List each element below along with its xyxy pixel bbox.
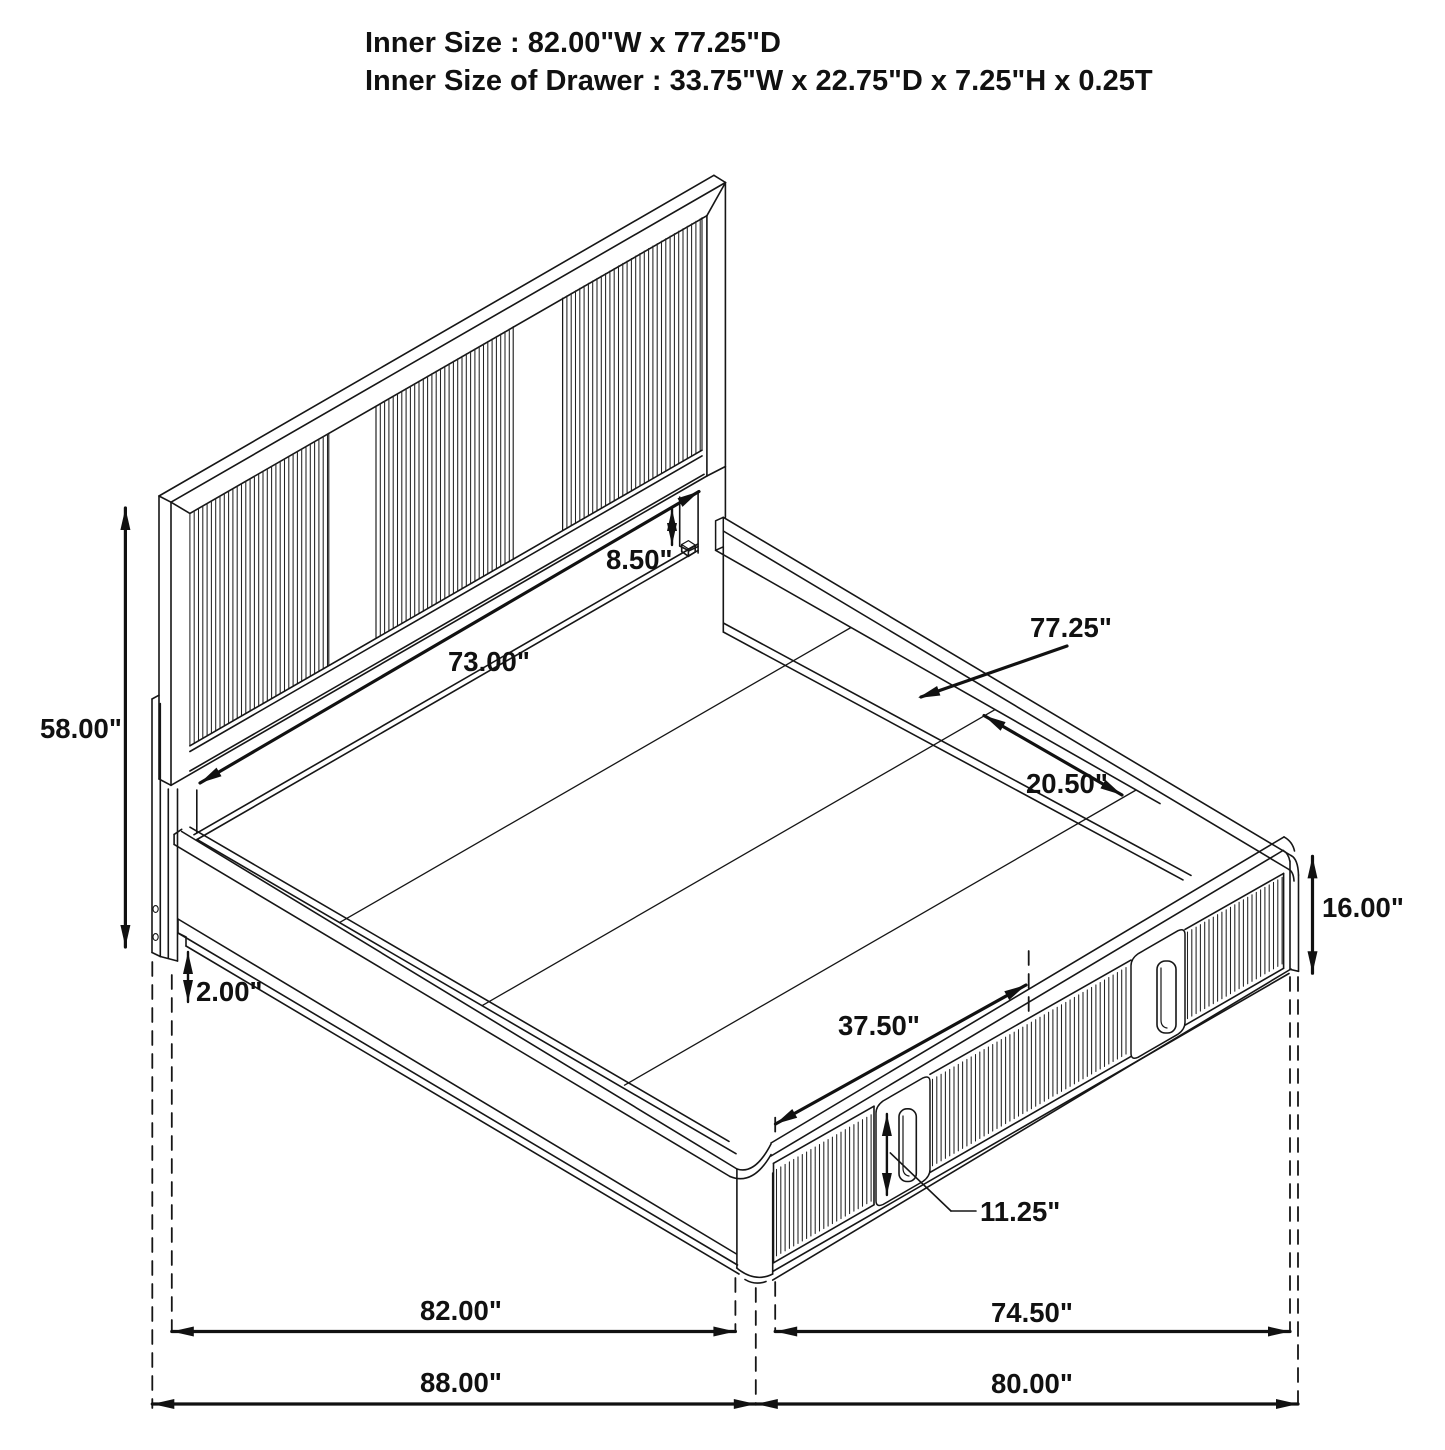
svg-text:77.25": 77.25" <box>1030 612 1112 643</box>
svg-text:82.00": 82.00" <box>420 1295 502 1326</box>
svg-text:37.50": 37.50" <box>838 1010 920 1041</box>
svg-text:2.00": 2.00" <box>196 976 263 1007</box>
svg-text:80.00": 80.00" <box>991 1368 1073 1399</box>
svg-text:74.50": 74.50" <box>991 1297 1073 1328</box>
svg-text:88.00": 88.00" <box>420 1367 502 1398</box>
svg-text:20.50": 20.50" <box>1026 768 1108 799</box>
svg-text:58.00": 58.00" <box>40 713 122 744</box>
svg-text:8.50": 8.50" <box>606 544 673 575</box>
svg-text:16.00": 16.00" <box>1322 892 1404 923</box>
svg-text:73.00": 73.00" <box>448 646 530 677</box>
svg-text:Inner Size : 82.00"W x 77.25"D: Inner Size : 82.00"W x 77.25"D <box>365 27 781 59</box>
svg-text:Inner Size of Drawer : 33.75"W: Inner Size of Drawer : 33.75"W x 22.75"D… <box>365 65 1153 97</box>
svg-text:11.25": 11.25" <box>980 1196 1060 1227</box>
